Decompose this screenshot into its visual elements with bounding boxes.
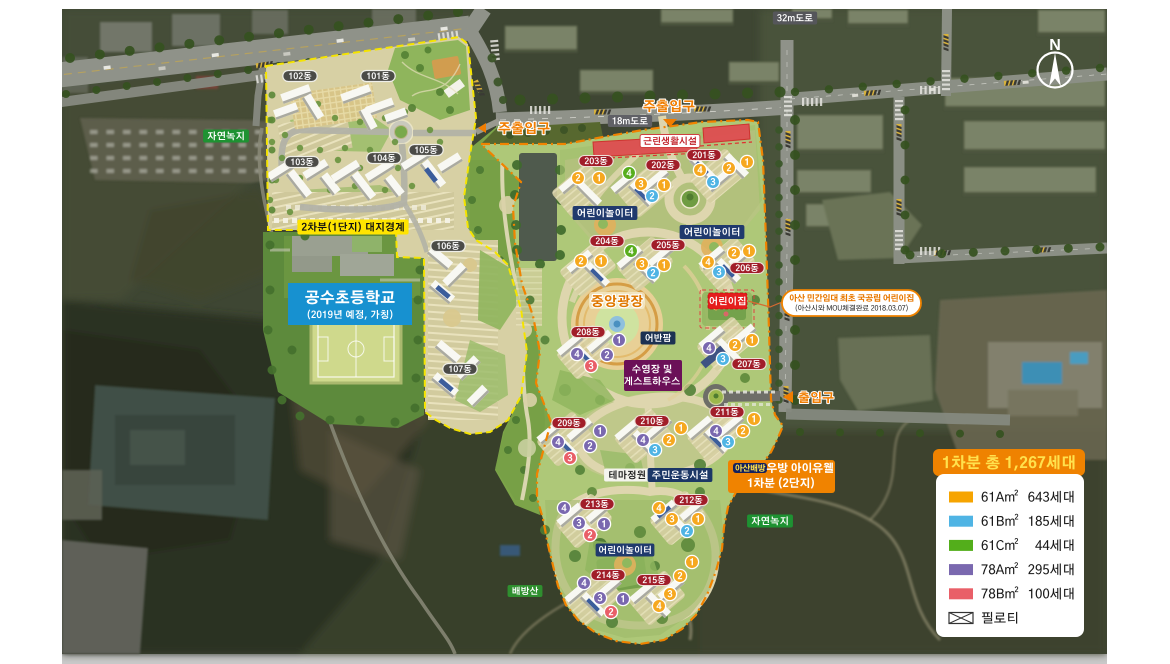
svg-text:N: N: [1049, 37, 1061, 54]
